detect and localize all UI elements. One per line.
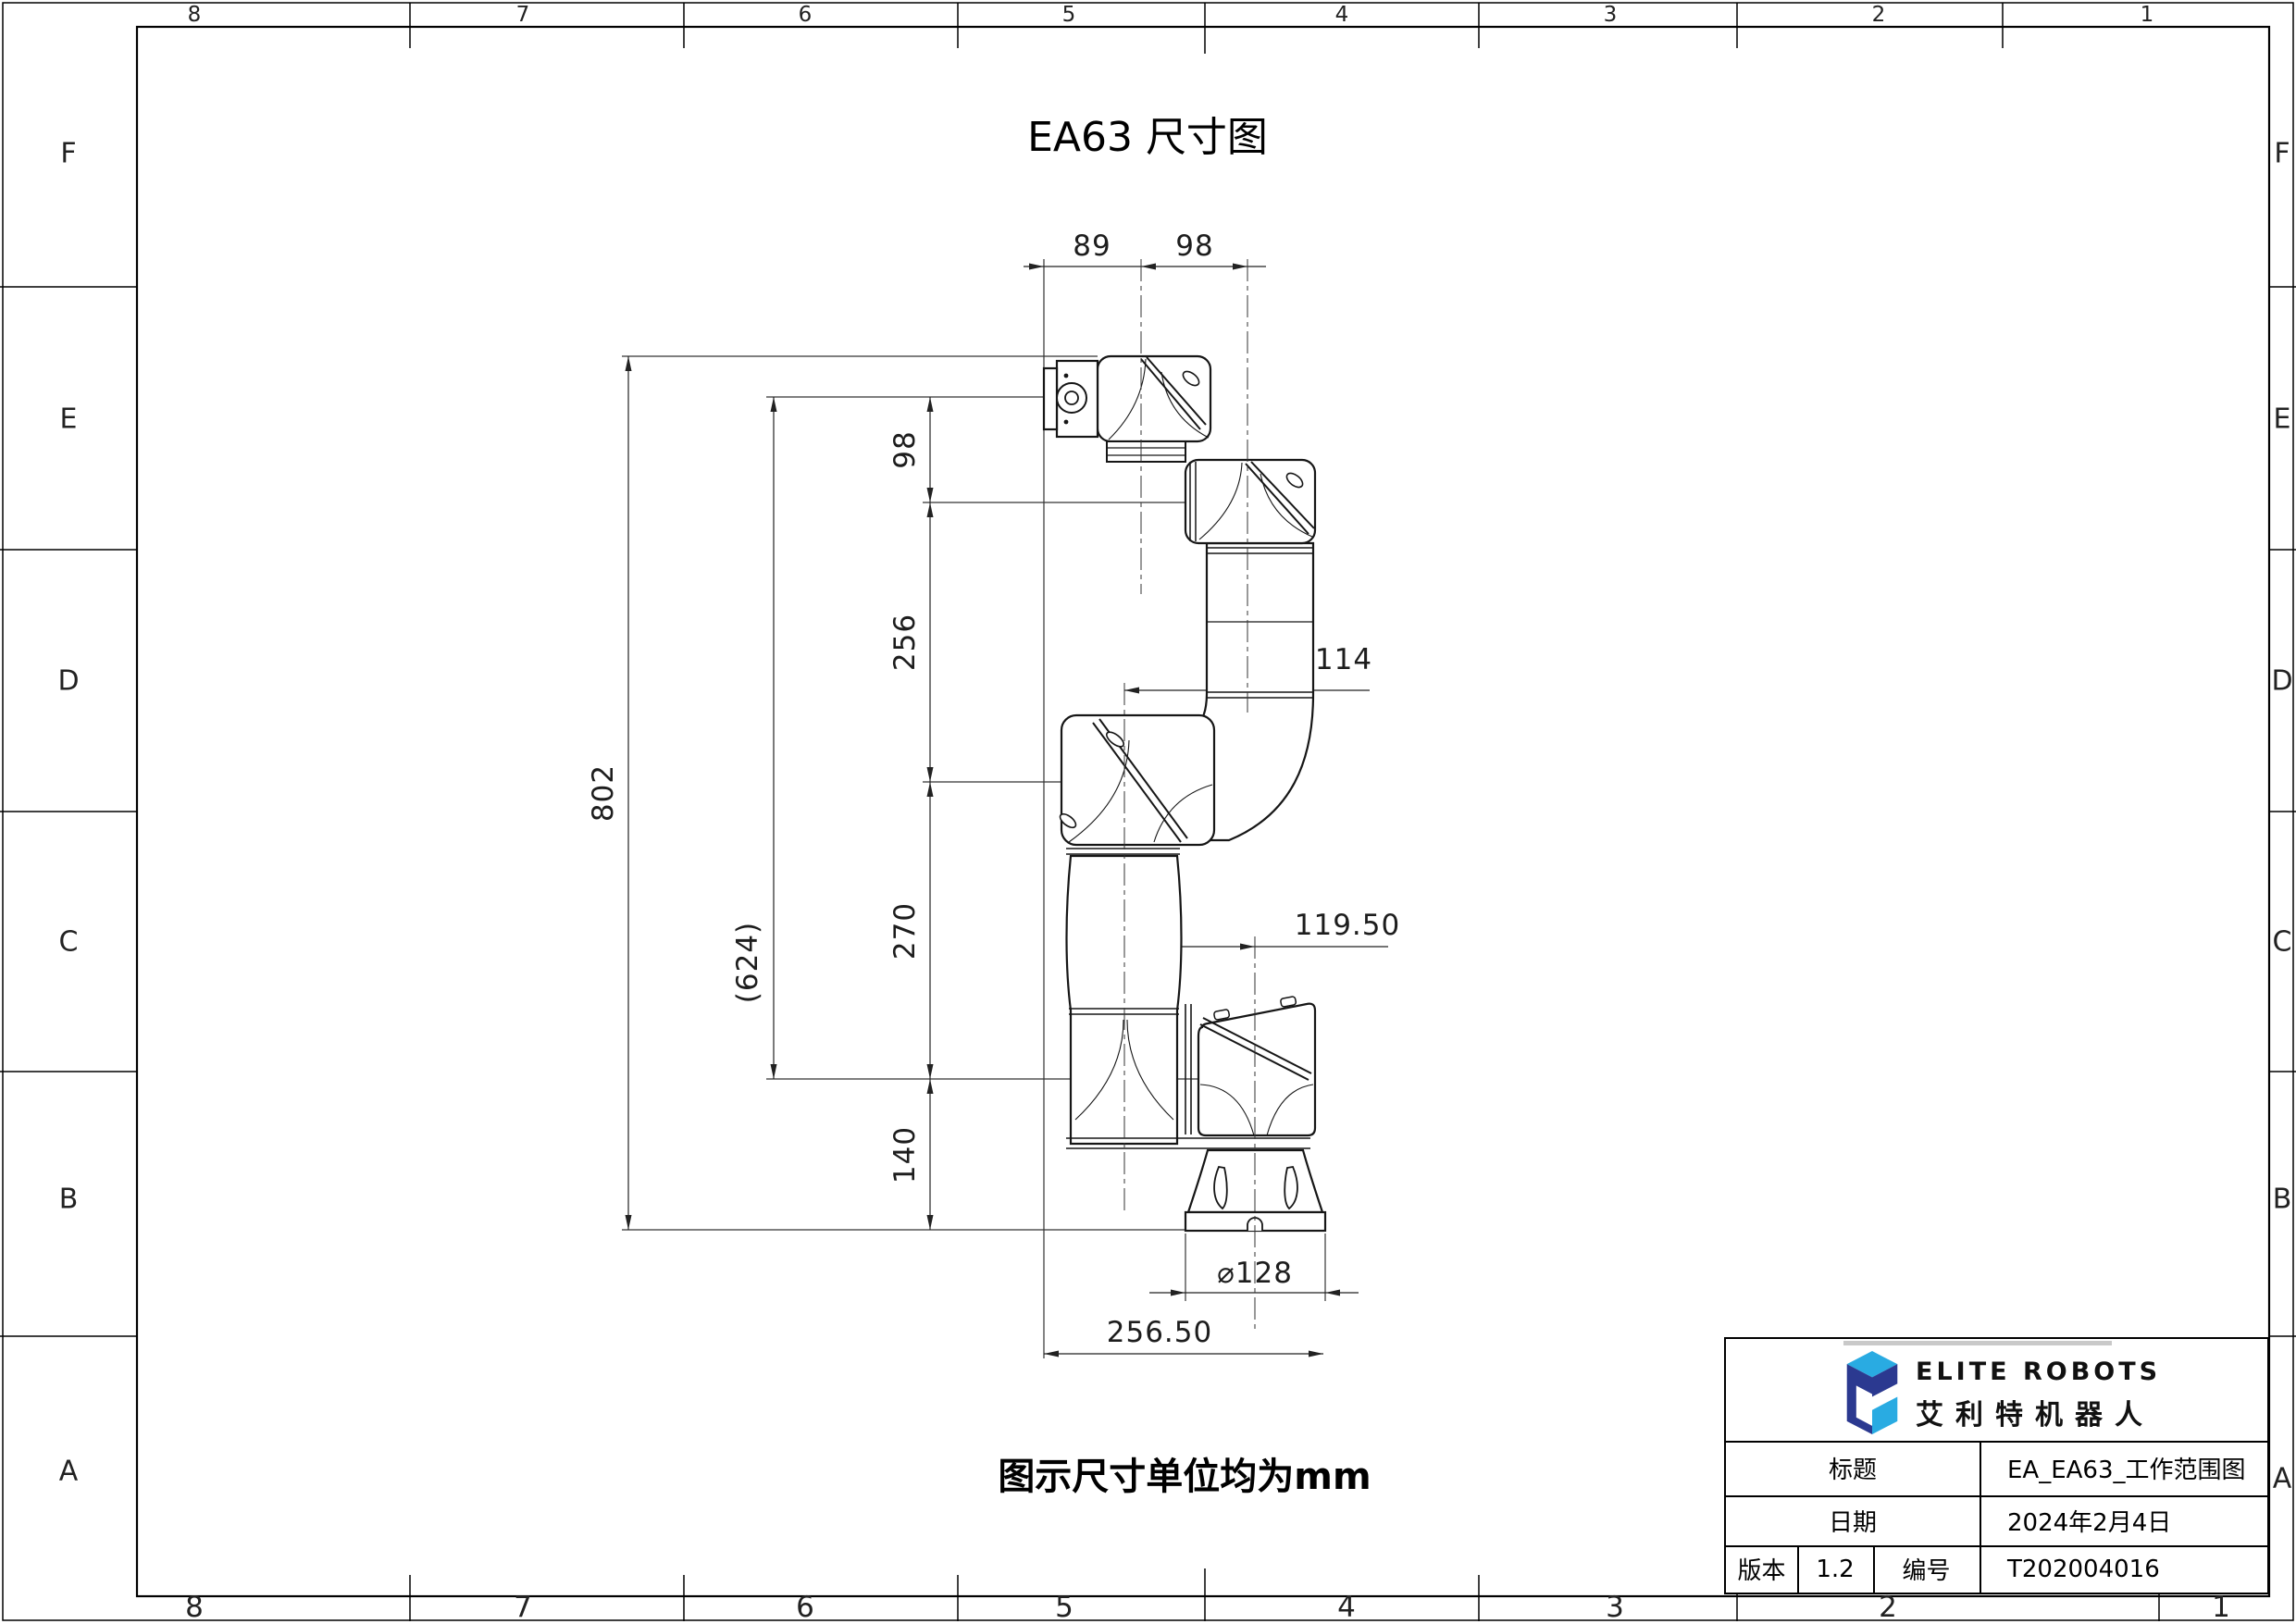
elite-robots-logo-icon xyxy=(1843,1348,1901,1437)
zone-number-top: 7 xyxy=(516,3,530,27)
title-block: ELITE ROBOTS 艾利特机器人 标题 EA_EA63_工作范围图 日期 … xyxy=(1724,1337,2269,1594)
dim-270: 270 xyxy=(888,902,922,960)
dim-89: 89 xyxy=(1073,229,1111,263)
robot-arm-outline xyxy=(1044,356,1325,1231)
zone-letter-right: B xyxy=(2273,1184,2292,1216)
zone-number-bottom: 7 xyxy=(514,1591,532,1624)
number-label: 编号 xyxy=(1873,1545,1980,1593)
zone-letter-right: A xyxy=(2273,1463,2292,1495)
dim-98-top: 98 xyxy=(1175,229,1213,263)
zone-number-top: 3 xyxy=(1604,3,1618,27)
version-label: 版本 xyxy=(1726,1545,1797,1593)
dim-114: 114 xyxy=(1315,643,1372,676)
zone-number-top: 8 xyxy=(188,3,202,27)
zone-number-top: 1 xyxy=(2141,3,2154,27)
zone-number-top: 2 xyxy=(1872,3,1886,27)
zone-letter-left: F xyxy=(60,138,76,170)
date-value: 2024年2月4日 xyxy=(2007,1495,2266,1545)
brand-name-cn: 艾利特机器人 xyxy=(1916,1392,2154,1432)
zone-number-top: 6 xyxy=(799,3,813,27)
date-label: 日期 xyxy=(1726,1495,1980,1545)
zone-number-bottom: 2 xyxy=(1879,1591,1897,1624)
dim-256: 256 xyxy=(888,614,922,671)
zone-letter-left: B xyxy=(59,1184,79,1216)
logo-divider-bar xyxy=(1843,1341,2112,1345)
zone-letter-left: C xyxy=(59,926,79,959)
zone-letter-right: C xyxy=(2273,926,2292,959)
title-block-line xyxy=(1980,1441,1981,1593)
dim-dia-128: ⌀128 xyxy=(1217,1257,1293,1290)
zone-number-top: 4 xyxy=(1335,3,1349,27)
zone-number-top: 5 xyxy=(1062,3,1076,27)
dim-256-50: 256.50 xyxy=(1107,1316,1212,1349)
dim-802: 802 xyxy=(587,764,620,822)
zone-letter-left: A xyxy=(59,1456,79,1488)
brand-text: ELITE ROBOTS 艾利特机器人 xyxy=(1916,1352,2267,1437)
zone-number-bottom: 1 xyxy=(2212,1591,2230,1624)
zone-number-bottom: 8 xyxy=(185,1591,204,1624)
zone-number-bottom: 6 xyxy=(796,1591,814,1624)
dim-98-left: 98 xyxy=(888,430,922,468)
brand-name-en: ELITE ROBOTS xyxy=(1916,1357,2161,1386)
zone-letter-right: F xyxy=(2274,138,2290,170)
dim-119-50: 119.50 xyxy=(1295,909,1400,942)
zone-number-bottom: 5 xyxy=(1055,1591,1074,1624)
page-title: EA63 尺寸图 xyxy=(972,104,1323,163)
brand-logo xyxy=(1843,1348,1901,1437)
dim-624: (624) xyxy=(731,922,764,1003)
version-value: 1.2 xyxy=(1797,1545,1873,1593)
zone-number-bottom: 4 xyxy=(1337,1591,1356,1624)
zone-letter-left: E xyxy=(60,403,78,436)
zone-number-bottom: 3 xyxy=(1606,1591,1624,1624)
units-note: 图示尺寸单位均为mm xyxy=(981,1446,1388,1500)
title-value: EA_EA63_工作范围图 xyxy=(2007,1441,2266,1495)
zone-letter-left: D xyxy=(57,665,79,698)
zone-letter-right: E xyxy=(2274,403,2291,436)
dim-140: 140 xyxy=(888,1126,922,1184)
title-label: 标题 xyxy=(1726,1441,1980,1495)
number-value: T202004016 xyxy=(2007,1545,2266,1593)
zone-letter-right: D xyxy=(2271,665,2292,698)
